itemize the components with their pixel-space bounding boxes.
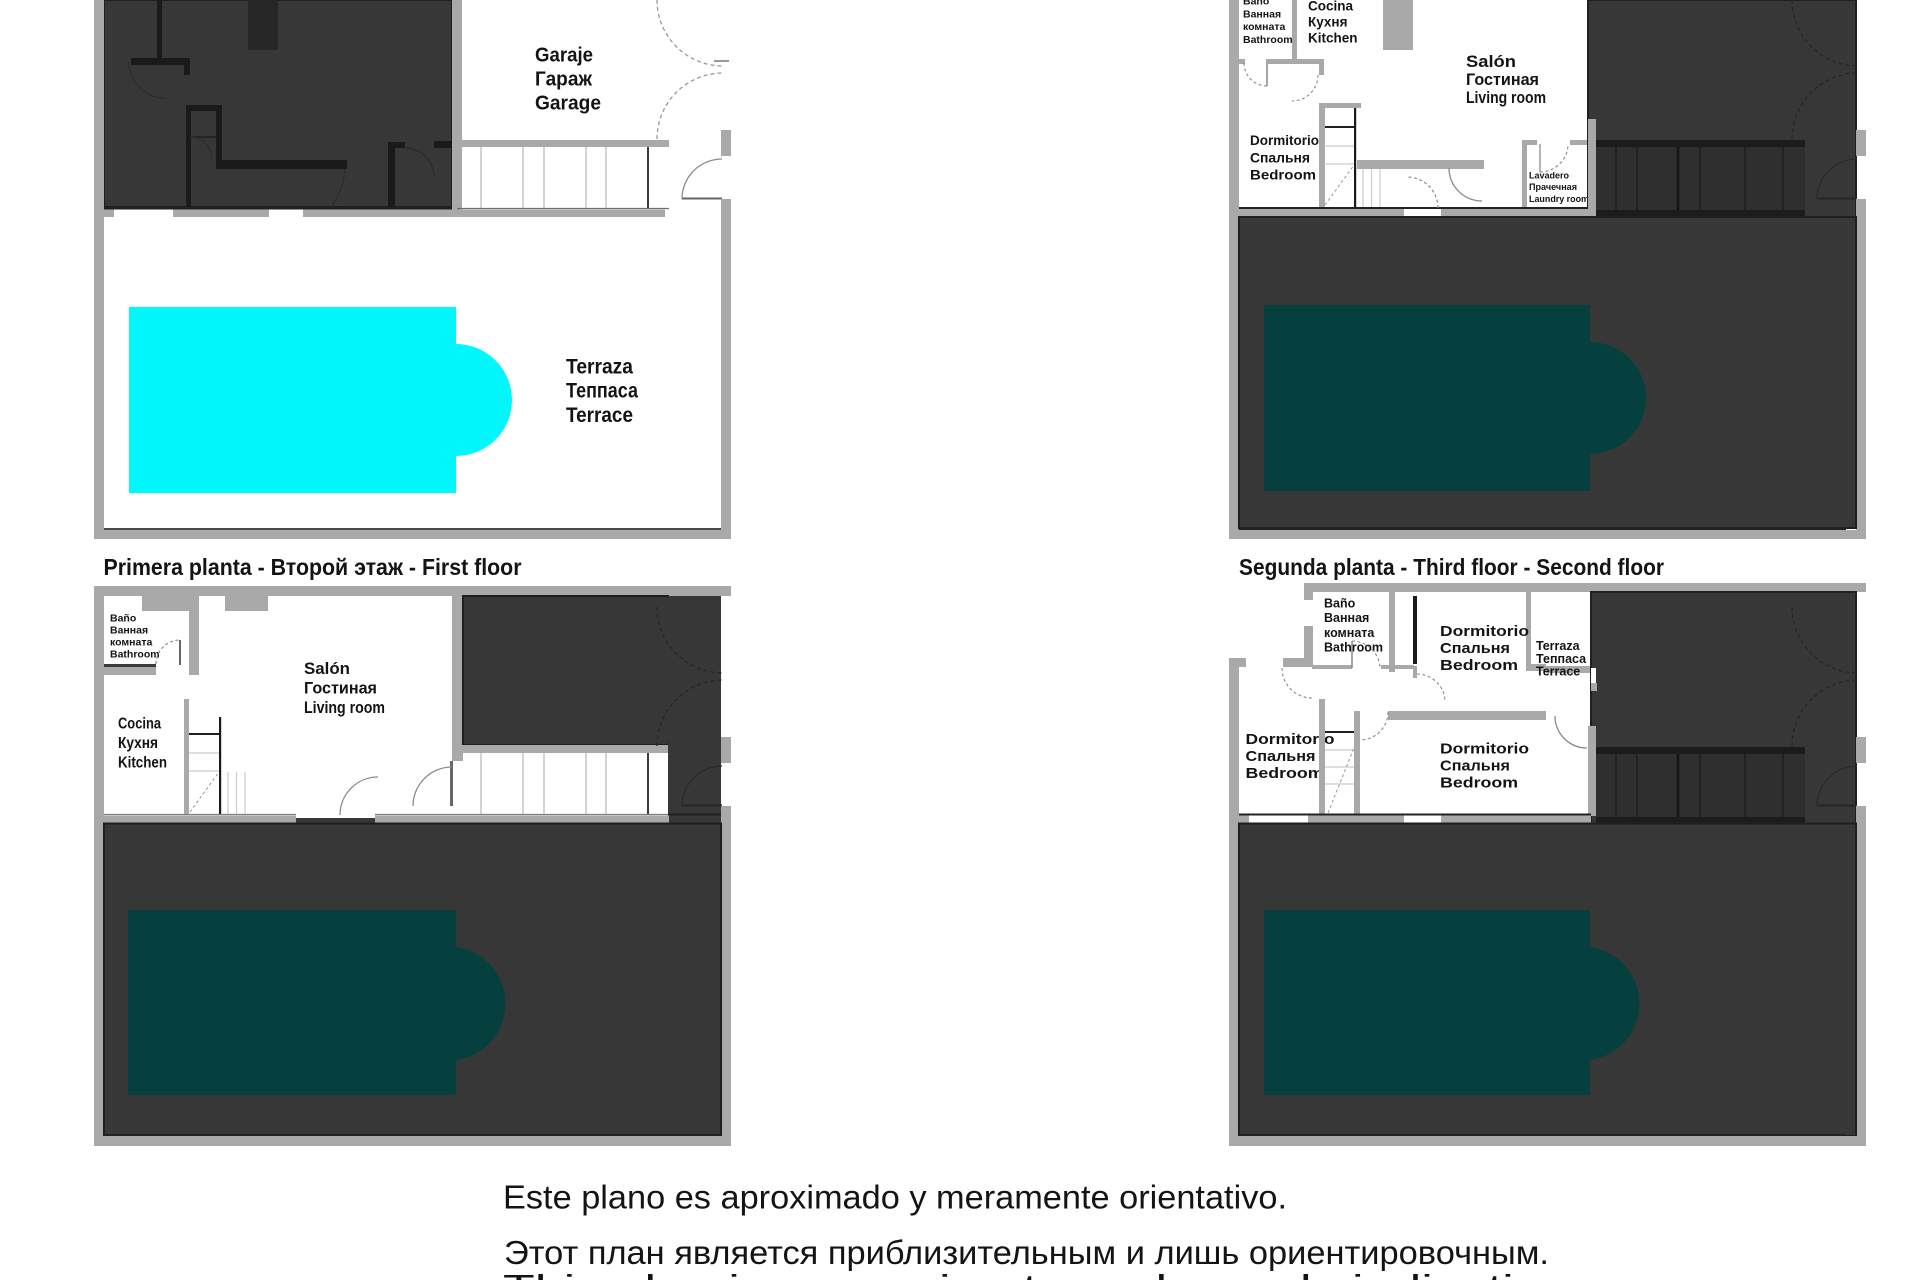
svg-text:TerrazaТеппасаTerrace: TerrazaТеппасаTerrace xyxy=(1536,639,1587,679)
svg-text:Этот план является приблизител: Этот план является приблизительным и лиш… xyxy=(504,1234,1549,1271)
svg-text:DormitorioСпальняBedroom: DormitorioСпальняBedroom xyxy=(1250,132,1319,183)
svg-text:Segunda planta - Third floor -: Segunda planta - Third floor - Second fl… xyxy=(1239,554,1664,580)
svg-text:GarajeГаражGarage: GarajeГаражGarage xyxy=(535,45,601,115)
svg-text:TerrazaТеппасаTerrace: TerrazaТеппасаTerrace xyxy=(566,356,638,427)
svg-text:Primera planta - Второй этаж -: Primera planta - Второй этаж - First flo… xyxy=(104,554,522,580)
svg-text:Este plano es aproximado y mer: Este plano es aproximado y meramente ori… xyxy=(503,1179,1287,1216)
svg-text:This plan is approximate and m: This plan is approximate and merely indi… xyxy=(503,1268,1583,1280)
